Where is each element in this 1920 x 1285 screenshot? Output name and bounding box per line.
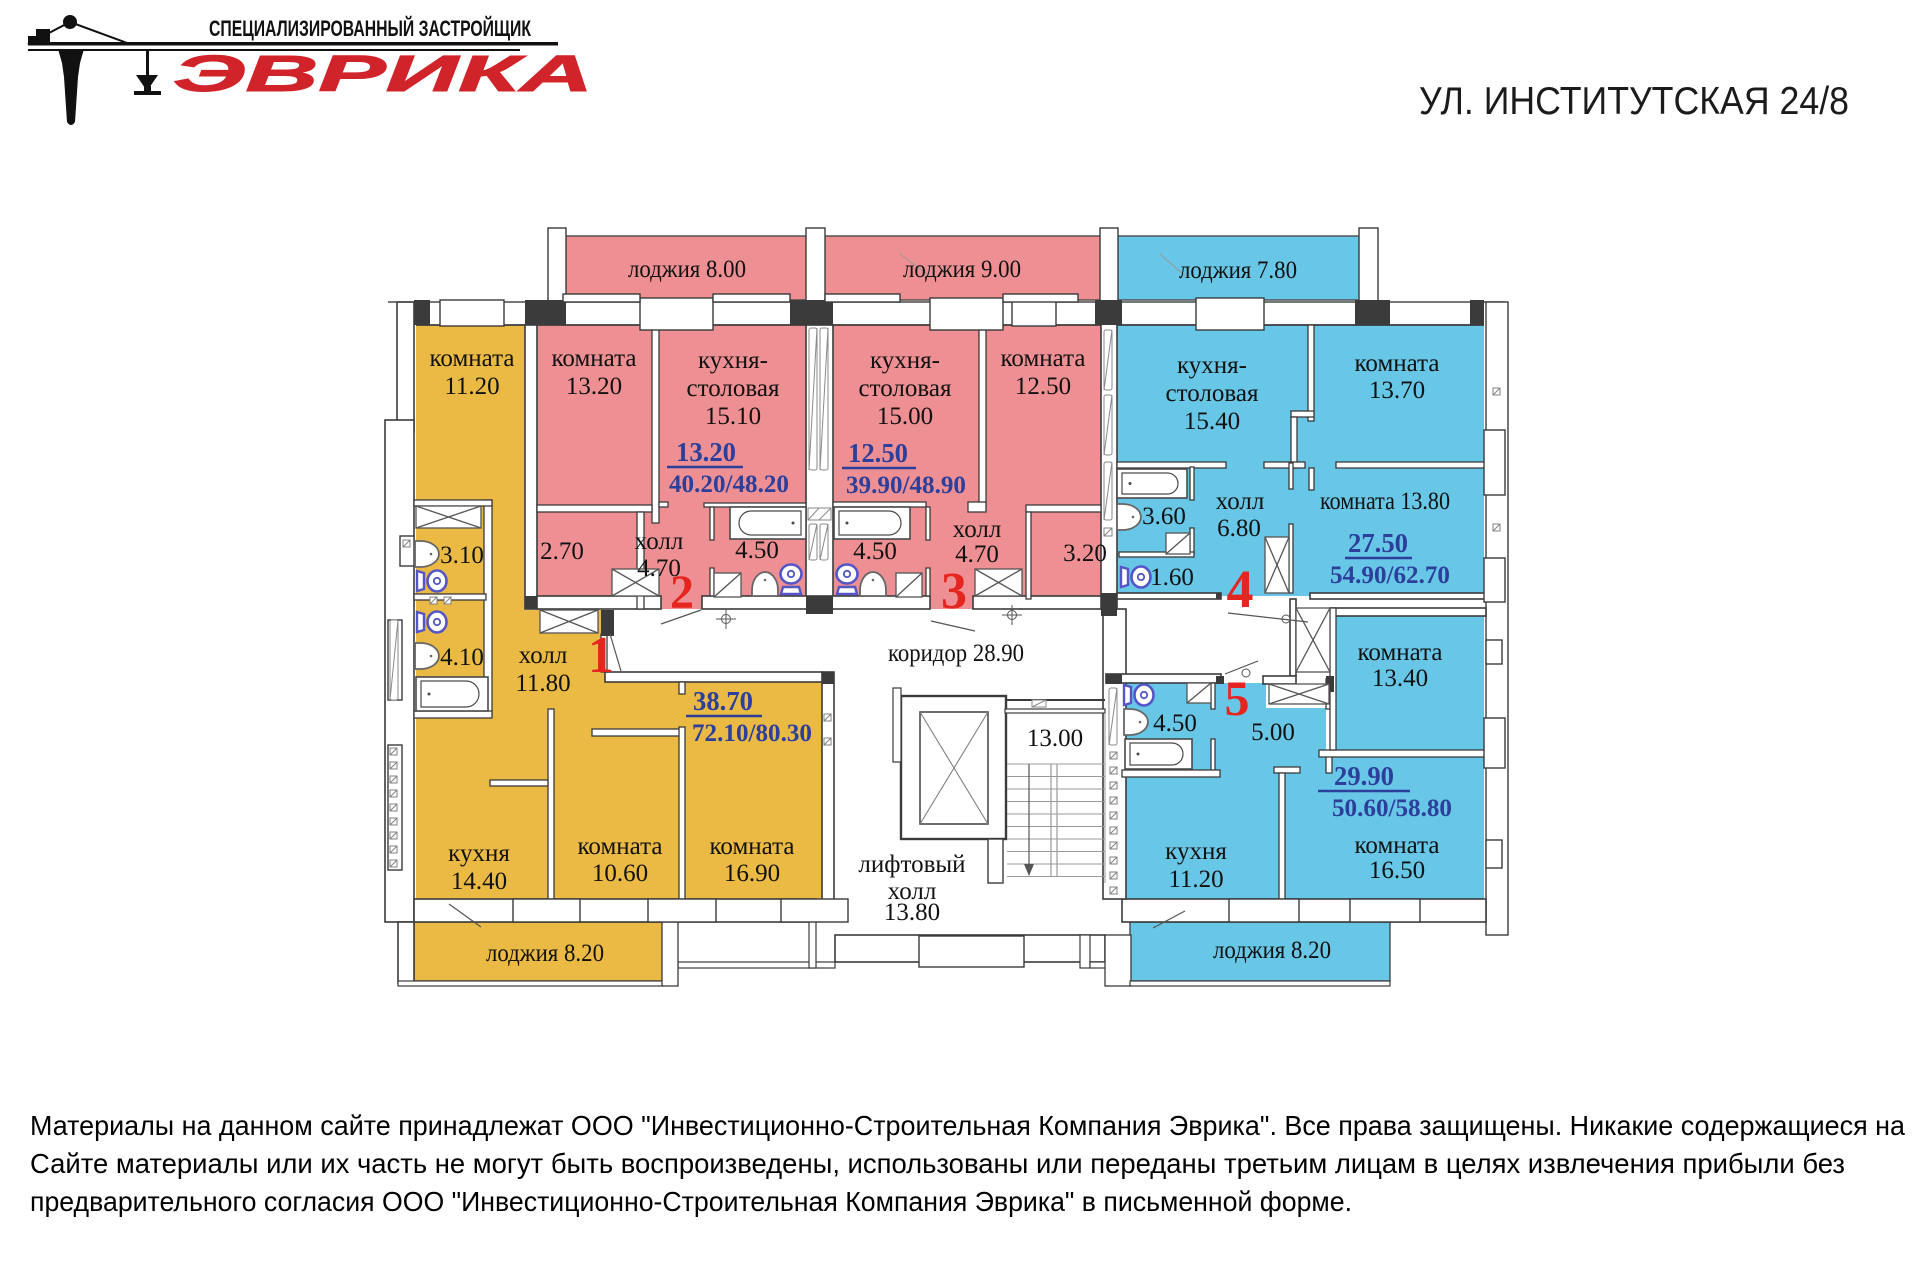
svg-text:предварительного согласия ООО: предварительного согласия ООО "Инвестици… — [30, 1186, 1352, 1217]
svg-text:4: 4 — [1227, 559, 1254, 619]
svg-text:комната 13.80: комната 13.80 — [1320, 488, 1450, 515]
svg-text:10.60: 10.60 — [592, 860, 648, 887]
svg-text:столовая: столовая — [687, 375, 780, 402]
svg-text:кухня: кухня — [1165, 838, 1227, 865]
svg-text:13.20: 13.20 — [676, 437, 736, 467]
svg-text:холл: холл — [1216, 488, 1265, 515]
svg-text:3.10: 3.10 — [440, 542, 484, 569]
svg-text:11.80: 11.80 — [515, 670, 570, 697]
svg-text:лоджия 8.20: лоджия 8.20 — [486, 940, 604, 967]
svg-text:3: 3 — [941, 563, 967, 620]
svg-text:комната: комната — [1358, 639, 1443, 666]
svg-text:14.40: 14.40 — [451, 868, 507, 895]
svg-text:12.50: 12.50 — [1015, 373, 1071, 400]
svg-text:15.00: 15.00 — [877, 403, 933, 430]
svg-text:Сайте материалы или их часть н: Сайте материалы или их часть не могут бы… — [30, 1148, 1845, 1179]
svg-text:ЭВРИКА: ЭВРИКА — [173, 45, 593, 102]
svg-text:холл: холл — [635, 528, 684, 555]
svg-text:29.90: 29.90 — [1334, 761, 1394, 791]
svg-text:УЛ. ИНСТИТУТСКАЯ 24/8: УЛ. ИНСТИТУТСКАЯ 24/8 — [1419, 80, 1849, 123]
svg-text:комната: комната — [430, 345, 515, 372]
svg-text:1.60: 1.60 — [1150, 564, 1194, 591]
svg-text:54.90/62.70: 54.90/62.70 — [1330, 562, 1450, 589]
svg-text:столовая: столовая — [1166, 380, 1259, 407]
svg-text:4.50: 4.50 — [1153, 710, 1197, 737]
svg-text:комната: комната — [710, 833, 795, 860]
svg-text:15.10: 15.10 — [705, 403, 761, 430]
svg-text:12.50: 12.50 — [848, 438, 908, 468]
svg-text:лифтовый: лифтовый — [858, 851, 965, 878]
svg-text:15.40: 15.40 — [1184, 408, 1240, 435]
svg-text:27.50: 27.50 — [1348, 528, 1408, 558]
svg-text:холл: холл — [953, 516, 1002, 543]
svg-text:4.50: 4.50 — [853, 538, 897, 565]
svg-text:11.20: 11.20 — [444, 373, 499, 400]
svg-text:кухня-: кухня- — [870, 347, 940, 374]
svg-text:комната: комната — [552, 345, 637, 372]
svg-text:3.20: 3.20 — [1063, 540, 1107, 567]
svg-text:кухня-: кухня- — [698, 347, 768, 374]
svg-text:11.20: 11.20 — [1168, 866, 1223, 893]
svg-text:комната: комната — [1001, 345, 1086, 372]
svg-text:холл: холл — [519, 642, 568, 669]
svg-text:3.60: 3.60 — [1142, 503, 1186, 530]
svg-text:СПЕЦИАЛИЗИРОВАННЫЙ ЗАСТРОЙЩИК: СПЕЦИАЛИЗИРОВАННЫЙ ЗАСТРОЙЩИК — [209, 16, 531, 41]
svg-text:кухня-: кухня- — [1177, 352, 1247, 379]
svg-text:комната: комната — [1355, 350, 1440, 377]
svg-text:16.90: 16.90 — [724, 860, 780, 887]
svg-text:2: 2 — [670, 566, 694, 619]
svg-text:13.40: 13.40 — [1372, 665, 1428, 692]
svg-text:4.10: 4.10 — [440, 644, 484, 671]
svg-text:40.20/48.20: 40.20/48.20 — [669, 471, 789, 498]
svg-text:кухня: кухня — [448, 840, 510, 867]
svg-text:6.80: 6.80 — [1217, 515, 1261, 542]
svg-text:лоджия 8.00: лоджия 8.00 — [628, 256, 746, 283]
svg-text:столовая: столовая — [859, 375, 952, 402]
svg-text:5: 5 — [1225, 670, 1250, 726]
svg-text:13.00: 13.00 — [1027, 725, 1083, 752]
svg-text:коридор 28.90: коридор 28.90 — [888, 640, 1024, 667]
svg-text:лоджия 9.00: лоджия 9.00 — [903, 256, 1021, 283]
svg-text:13.20: 13.20 — [566, 373, 622, 400]
svg-text:50.60/58.80: 50.60/58.80 — [1332, 795, 1452, 822]
svg-text:13.80: 13.80 — [884, 899, 940, 926]
svg-text:16.50: 16.50 — [1369, 857, 1425, 884]
svg-text:1: 1 — [588, 627, 614, 684]
svg-text:комната: комната — [1355, 832, 1440, 859]
svg-text:лоджия 7.80: лоджия 7.80 — [1179, 257, 1297, 284]
svg-text:38.70: 38.70 — [693, 686, 753, 716]
svg-text:Материалы на данном сайте прин: Материалы на данном сайте принадлежат ОО… — [30, 1110, 1905, 1141]
svg-text:4.50: 4.50 — [735, 537, 779, 564]
svg-text:13.70: 13.70 — [1369, 377, 1425, 404]
svg-text:39.90/48.90: 39.90/48.90 — [846, 472, 966, 499]
svg-text:72.10/80.30: 72.10/80.30 — [692, 720, 812, 747]
svg-text:5.00: 5.00 — [1251, 719, 1295, 746]
svg-text:2.70: 2.70 — [540, 538, 584, 565]
svg-text:комната: комната — [578, 833, 663, 860]
svg-text:лоджия 8.20: лоджия 8.20 — [1213, 937, 1331, 964]
